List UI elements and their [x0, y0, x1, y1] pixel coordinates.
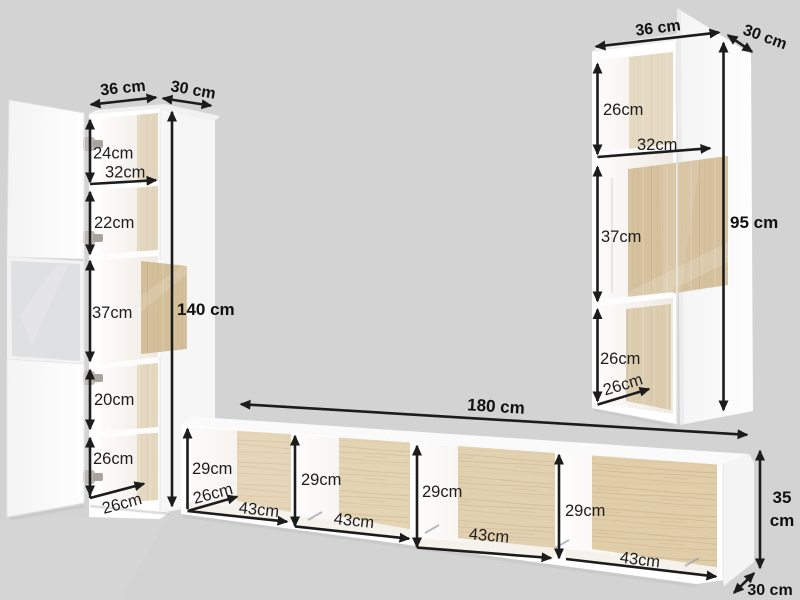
svg-text:26cm: 26cm — [600, 350, 640, 368]
svg-text:22cm: 22cm — [94, 214, 134, 232]
svg-text:43cm: 43cm — [468, 525, 510, 546]
svg-text:cm: cm — [770, 511, 795, 530]
svg-text:32cm: 32cm — [637, 136, 677, 154]
svg-text:29cm: 29cm — [192, 460, 232, 478]
svg-text:24cm: 24cm — [93, 145, 133, 163]
svg-text:140 cm: 140 cm — [177, 300, 235, 319]
svg-text:37cm: 37cm — [92, 304, 132, 322]
svg-text:26cm: 26cm — [603, 101, 643, 119]
svg-text:29cm: 29cm — [422, 483, 462, 501]
svg-text:29cm: 29cm — [301, 471, 341, 489]
svg-text:180 cm: 180 cm — [467, 395, 526, 417]
svg-text:30 cm: 30 cm — [747, 582, 792, 599]
svg-text:35: 35 — [773, 488, 792, 507]
svg-text:29cm: 29cm — [565, 502, 605, 520]
svg-text:20cm: 20cm — [94, 391, 134, 409]
svg-text:95 cm: 95 cm — [730, 213, 778, 232]
svg-text:32cm: 32cm — [105, 164, 145, 182]
svg-text:26cm: 26cm — [93, 450, 133, 468]
svg-text:37cm: 37cm — [601, 228, 641, 246]
